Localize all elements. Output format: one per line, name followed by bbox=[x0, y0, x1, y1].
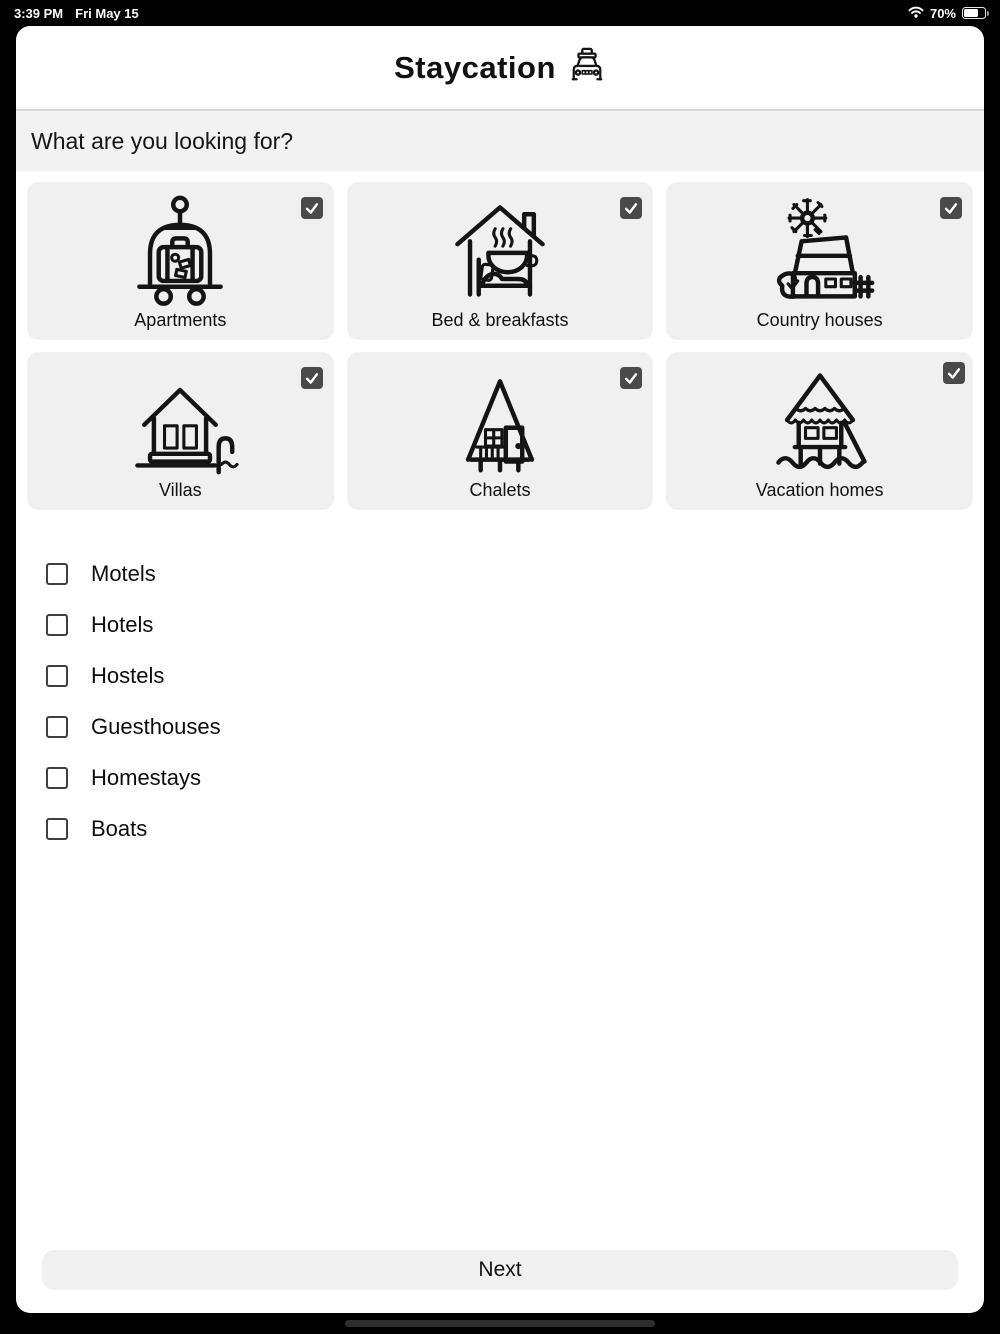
option-hotels[interactable]: Hotels bbox=[46, 599, 984, 650]
checkbox-bed-breakfasts-checked[interactable] bbox=[620, 197, 642, 219]
checkbox-vacation-homes-checked[interactable] bbox=[943, 362, 965, 384]
option-boats[interactable]: Boats bbox=[46, 803, 984, 854]
stilt-house-icon bbox=[761, 352, 879, 478]
card-label: Vacation homes bbox=[756, 478, 884, 510]
battery-icon bbox=[962, 7, 986, 19]
property-card-grid: Apartments bbox=[27, 182, 973, 510]
question-text: What are you looking for? bbox=[31, 128, 293, 155]
app-window: Staycation What are you looking for? bbox=[16, 26, 984, 1313]
card-country-houses[interactable]: Country houses bbox=[666, 182, 973, 340]
country-house-icon bbox=[761, 182, 879, 308]
taxi-icon bbox=[568, 47, 606, 88]
checkbox-guesthouses-unchecked[interactable] bbox=[46, 716, 68, 738]
card-label: Chalets bbox=[469, 478, 530, 510]
card-label: Apartments bbox=[134, 308, 226, 340]
home-indicator[interactable] bbox=[345, 1320, 655, 1327]
battery-percent: 70% bbox=[930, 6, 956, 21]
question-bar: What are you looking for? bbox=[16, 111, 984, 171]
checkbox-hostels-unchecked[interactable] bbox=[46, 665, 68, 687]
villa-icon bbox=[121, 352, 239, 478]
option-label: Motels bbox=[91, 561, 156, 587]
checkbox-chalets-checked[interactable] bbox=[620, 367, 642, 389]
checkbox-motels-unchecked[interactable] bbox=[46, 563, 68, 585]
option-guesthouses[interactable]: Guesthouses bbox=[46, 701, 984, 752]
status-date: Fri May 15 bbox=[75, 6, 139, 21]
card-apartments[interactable]: Apartments bbox=[27, 182, 334, 340]
card-villas[interactable]: Villas bbox=[27, 352, 334, 510]
checkbox-homestays-unchecked[interactable] bbox=[46, 767, 68, 789]
option-label: Hostels bbox=[91, 663, 164, 689]
option-label: Homestays bbox=[91, 765, 201, 791]
wifi-icon bbox=[908, 6, 924, 21]
card-chalets[interactable]: Chalets bbox=[347, 352, 654, 510]
extra-options-list: Motels Hotels Hostels Guesthouses Homest… bbox=[46, 548, 984, 854]
chalet-icon bbox=[441, 352, 559, 478]
card-label: Villas bbox=[159, 478, 202, 510]
page-title: Staycation bbox=[394, 50, 556, 86]
card-label: Country houses bbox=[757, 308, 883, 340]
option-homestays[interactable]: Homestays bbox=[46, 752, 984, 803]
checkbox-boats-unchecked[interactable] bbox=[46, 818, 68, 840]
checkbox-hotels-unchecked[interactable] bbox=[46, 614, 68, 636]
card-label: Bed & breakfasts bbox=[431, 308, 568, 340]
option-motels[interactable]: Motels bbox=[46, 548, 984, 599]
option-label: Boats bbox=[91, 816, 147, 842]
checkbox-apartments-checked[interactable] bbox=[301, 197, 323, 219]
status-bar: 3:39 PM Fri May 15 70% bbox=[0, 0, 1000, 26]
card-vacation-homes[interactable]: Vacation homes bbox=[666, 352, 973, 510]
option-label: Guesthouses bbox=[91, 714, 221, 740]
option-label: Hotels bbox=[91, 612, 153, 638]
app-header: Staycation bbox=[16, 26, 984, 111]
next-button[interactable]: Next bbox=[42, 1250, 958, 1290]
luggage-cart-icon bbox=[121, 182, 239, 308]
bed-breakfast-icon bbox=[441, 182, 559, 308]
checkbox-country-houses-checked[interactable] bbox=[940, 197, 962, 219]
card-bed-breakfasts[interactable]: Bed & breakfasts bbox=[347, 182, 654, 340]
option-hostels[interactable]: Hostels bbox=[46, 650, 984, 701]
status-time: 3:39 PM bbox=[14, 6, 63, 21]
checkbox-villas-checked[interactable] bbox=[301, 367, 323, 389]
